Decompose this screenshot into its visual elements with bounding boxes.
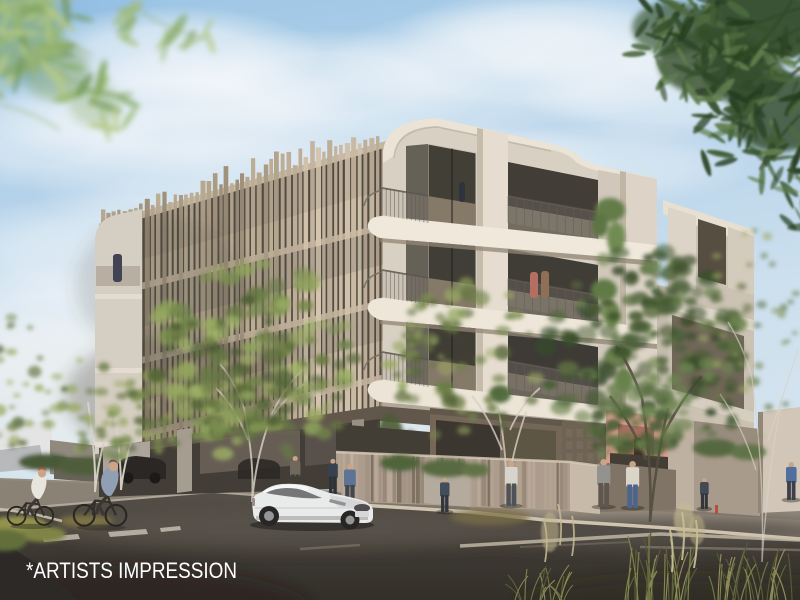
svg-text:*ARTISTS IMPRESSION: *ARTISTS IMPRESSION xyxy=(26,558,237,583)
